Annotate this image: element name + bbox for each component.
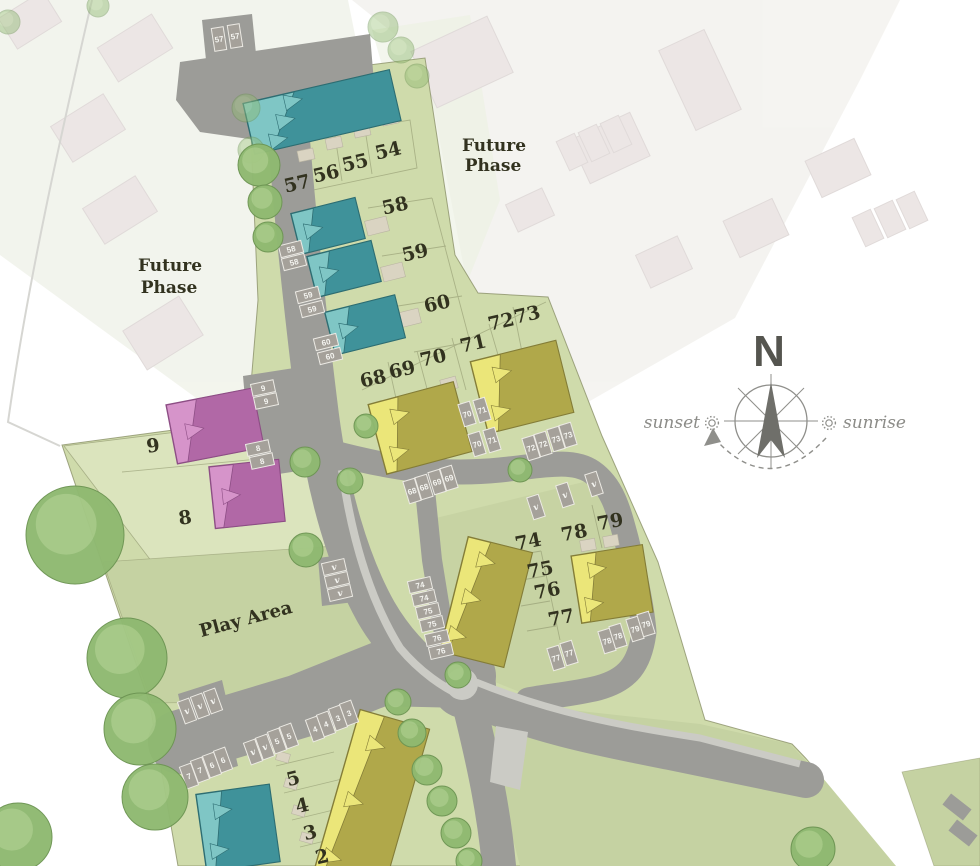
tree — [412, 755, 442, 785]
future-phase-right-label-line2: Phase — [465, 156, 522, 176]
sunrise-sun-icon — [823, 417, 836, 430]
tree — [87, 0, 109, 17]
sunrise-label: sunrise — [843, 413, 906, 433]
tree — [104, 693, 176, 765]
tree — [0, 803, 52, 866]
future-phase-left-label-line2: Phase — [141, 278, 198, 298]
tree — [87, 618, 167, 698]
future-phase-left-label-line1: Future — [138, 256, 202, 276]
tree — [441, 818, 471, 848]
tree — [354, 414, 378, 438]
site-plan: 5757585859596060998870717071727273736868… — [0, 0, 980, 866]
tree — [337, 468, 363, 494]
tree — [405, 64, 429, 88]
driveway-pad — [603, 534, 620, 547]
building-teal — [196, 784, 280, 866]
tree — [289, 533, 323, 567]
building-yellow — [571, 545, 653, 623]
compass-north-label: N — [753, 327, 785, 376]
tree — [398, 719, 426, 747]
site-plan-drawing: 5757585859596060998870717071727273736868… — [0, 0, 980, 866]
tree — [791, 827, 835, 866]
tree — [508, 458, 532, 482]
sunset-label: sunset — [644, 413, 700, 433]
tree — [388, 37, 414, 63]
future-phase-right-label-line1: Future — [462, 136, 526, 156]
tree — [248, 185, 282, 219]
tree — [385, 689, 411, 715]
tree — [238, 144, 280, 186]
tree — [368, 12, 398, 42]
tree — [427, 786, 457, 816]
tree — [0, 10, 20, 34]
tree — [232, 94, 260, 122]
sun-path-arrowhead — [704, 428, 721, 446]
sunset-sun-icon — [706, 417, 719, 430]
tree — [290, 447, 320, 477]
building-pink — [209, 460, 285, 529]
tree — [253, 222, 283, 252]
tree — [122, 764, 188, 830]
compass-rose: N sunset sunrise — [644, 327, 906, 469]
tree — [445, 662, 471, 688]
tree — [26, 486, 124, 584]
